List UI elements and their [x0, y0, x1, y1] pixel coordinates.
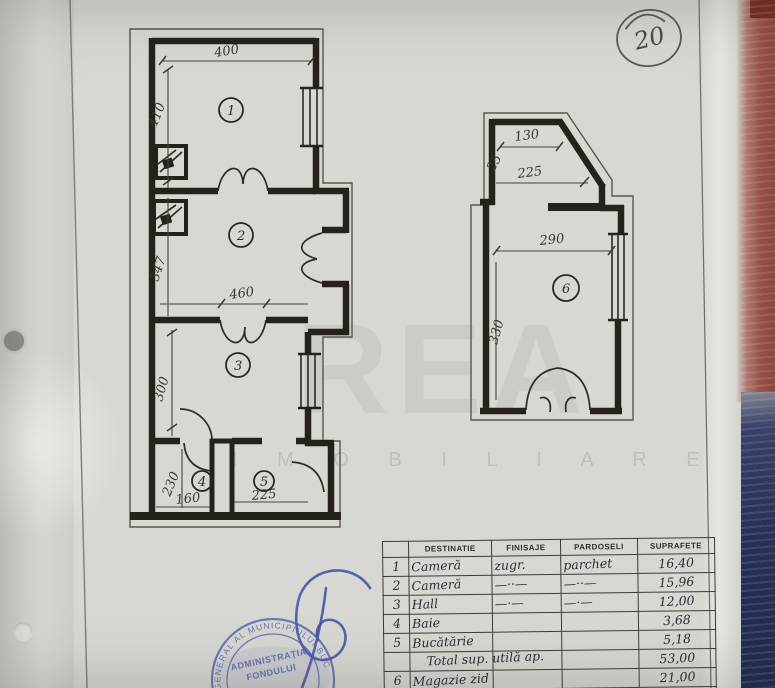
svg-text:2: 2: [236, 229, 245, 244]
scanned-floorplan-document: REA I M O B I L I A R E 20: [0, 0, 775, 688]
door-arc-hall: [180, 409, 212, 441]
cell-suprafete: 12,00: [658, 593, 694, 610]
row-num: 5: [393, 635, 402, 650]
cell-suprafete: 21,00: [659, 669, 695, 686]
svg-text:6: 6: [562, 282, 570, 297]
room-number-3: 3: [226, 353, 250, 377]
window-hatch-room6: [608, 234, 628, 320]
dimension-label-290: 290: [538, 231, 565, 249]
dimension-label-130: 130: [514, 127, 540, 145]
header-num: [382, 541, 409, 557]
flue-box-upper: [156, 146, 186, 178]
header-pardoseli: PARDOSELI: [560, 538, 637, 555]
row-num: 1: [392, 559, 401, 574]
cell-pardoseli: —··—: [563, 575, 597, 592]
municipal-stamp: UL GENERAL AL MUNICIPIULUI BUC ADMINISTR…: [185, 598, 361, 688]
room-number-4: 4: [192, 471, 212, 491]
header-finisaje: FINISAJE: [491, 539, 560, 556]
cell-pardoseli: parchet: [563, 555, 613, 572]
page-number-text: 20: [630, 21, 667, 56]
room-number-5: 5: [254, 471, 274, 491]
cell-suprafete: 15,96: [658, 574, 694, 591]
dimension-label-25: 25: [484, 152, 505, 175]
chimney-pillar: [212, 441, 232, 516]
dimension-label-160: 160: [175, 490, 201, 508]
area-table: DESTINATIE FINISAJE PARDOSELI SUPRAFETE …: [382, 537, 717, 688]
svg-text:4: 4: [197, 475, 206, 490]
flue-box-lower: [154, 201, 186, 234]
dimension-label-225-right: 225: [516, 164, 543, 182]
cell-suprafete: 3,68: [663, 612, 692, 628]
dimension-label-330: 330: [486, 318, 507, 346]
cell-finisaje: —·—: [494, 595, 524, 611]
row-num: 2: [392, 578, 401, 593]
window-hatch-room3: [298, 354, 321, 408]
cell-suprafete: 53,00: [659, 650, 695, 667]
svg-text:1: 1: [227, 104, 235, 119]
door-arc-room3: [220, 320, 266, 343]
row-num: 4: [392, 616, 401, 631]
row-num: 3: [392, 597, 401, 612]
door-arc-room1: [218, 168, 268, 191]
door-arc-room4: [184, 443, 211, 471]
cell-finisaje: zugr.: [494, 557, 526, 573]
door-arc-room5: [292, 462, 324, 492]
left-fold-line: [70, 0, 87, 688]
circled-page-number: 20: [613, 6, 684, 70]
cell-suprafete: 16,40: [658, 555, 694, 572]
cell-finisaje: —··—: [494, 576, 528, 593]
room-number-1: 1: [219, 98, 243, 122]
cell-destinatie: Hall: [412, 596, 439, 612]
svg-text:5: 5: [260, 475, 268, 490]
cell-destinatie: Cameră: [412, 576, 462, 593]
dimension-label-460: 460: [227, 285, 255, 303]
cell-destinatie: Cameră: [411, 557, 461, 574]
cell-destinatie: Bucătărie: [412, 633, 474, 651]
window-hatch-room1: [300, 88, 323, 146]
room-number-6: 6: [553, 275, 579, 301]
cell-destinatie: Baie: [412, 615, 441, 631]
cell-destinatie: Magazie zid: [413, 670, 490, 688]
left-floor-plan: 400 410 347 460 300 230 160 225 1 2 3: [130, 29, 352, 527]
right-floor-plan: 130 25 225 290 330 6: [471, 113, 633, 420]
door-arc-room6-entrance: [526, 368, 590, 412]
header-suprafete: SUPRAFETE: [637, 537, 714, 554]
room-number-2: 2: [229, 223, 253, 247]
header-destinatie: DESTINATIE: [409, 540, 492, 557]
door-arc-balcony: [302, 233, 322, 283]
dimension-label-400: 400: [212, 42, 240, 61]
row-num: 6: [393, 673, 402, 688]
cell-suprafete: 5,18: [663, 631, 692, 647]
svg-text:3: 3: [234, 359, 242, 374]
cell-pardoseli: —·—: [563, 594, 593, 610]
stamp-ink-smudge: [215, 646, 331, 688]
